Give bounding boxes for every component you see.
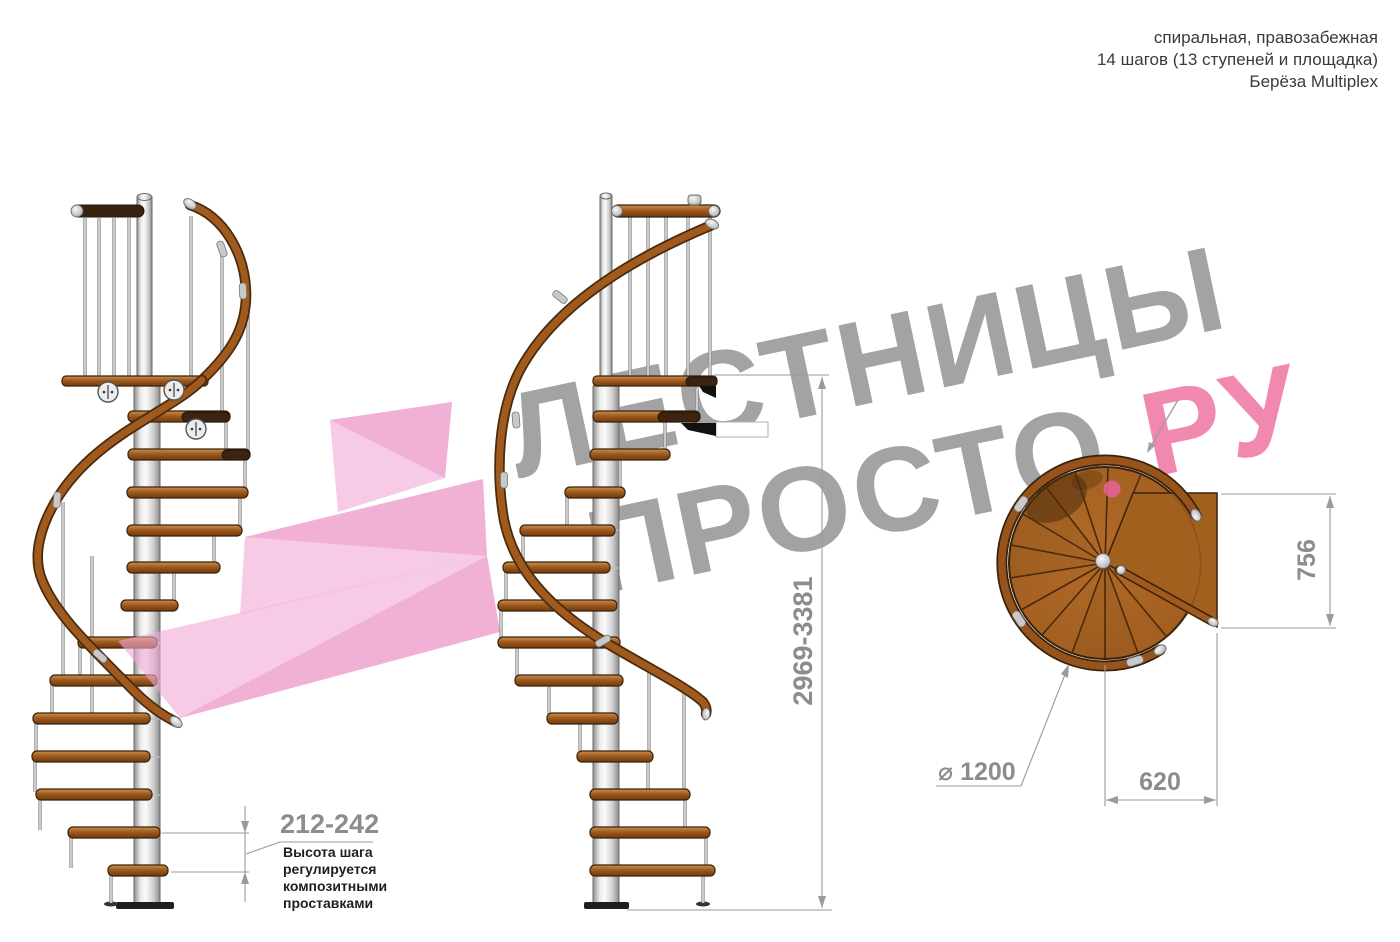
step [36,789,152,800]
handrail-joint [552,289,569,304]
rail-end-ball [709,206,720,217]
center-pole-upper [600,196,612,386]
step [121,600,178,611]
center-pole-top [1096,554,1111,569]
step [33,713,150,724]
note-line2: регулируется [283,861,376,877]
step [108,865,168,876]
handrail-joint [239,283,247,299]
rail-post-ball [1117,566,1126,575]
handrail [190,205,246,379]
step [127,562,220,573]
pole-top-cap [600,193,612,199]
title-steps: 14 шагов (13 ступеней и площадка) [1097,50,1378,69]
handrail-joint [216,240,228,257]
watermark-dot [1104,481,1121,498]
step [127,487,248,498]
landing-depth-label: 756 [1293,539,1321,581]
rail-end-ball [612,206,623,217]
handrail-joint [53,492,61,509]
note-line1: Высота шага [283,844,373,860]
note-line3: композитными [283,878,387,894]
rail-knob [688,195,701,205]
center-pole-upper [137,197,152,386]
step [577,751,653,762]
handrail-outline [190,205,246,379]
step [68,827,160,838]
title-block: спиральная, правозабежная 14 шагов (13 с… [1097,28,1379,91]
note-line4: проставками [283,895,373,911]
diameter-value: 1200 [960,758,1016,786]
landing-platform [62,376,208,386]
dimension-landing-depth: 756 [1221,494,1336,628]
step-dark-end [658,412,700,422]
dimension-diameter: ⌀1200 [936,664,1069,786]
handrail-joint [512,412,520,429]
step [127,525,242,536]
base-flange [584,902,629,909]
step [520,525,615,536]
pole-top-cap [137,194,152,201]
top-guard-rail [612,205,720,217]
step [565,487,625,498]
step [50,675,157,686]
connector-disc [186,419,206,439]
step-height-label: 212-242 [280,809,379,839]
connector-disc [98,382,118,402]
drawing-canvas: ЛЕСТНИЦЫ ПРОСТО.РУ [0,0,1400,942]
step-dark-end [686,377,717,386]
step [590,827,710,838]
step-dark-end [182,412,230,422]
step [590,865,715,876]
dimension-landing-width: 620 [1105,633,1217,806]
landing-width-label: 620 [1139,768,1181,796]
wall-mount-plate [716,422,768,437]
step-dark-end [222,450,250,460]
step [32,751,150,762]
handrail-joint [501,472,508,488]
total-height-label: 2969-3381 [788,576,818,705]
technical-drawing-page: ЛЕСТНИЦЫ ПРОСТО.РУ [0,0,1400,942]
step [590,789,690,800]
step [590,449,670,460]
connector-disc [164,380,184,400]
diameter-symbol: ⌀ [938,757,953,786]
step [515,675,623,686]
step-height-note: Высота шага регулируется композитными пр… [283,844,387,911]
title-material: Берёза Multiplex [1249,72,1378,91]
step [547,713,618,724]
title-type: спиральная, правозабежная [1154,28,1378,47]
rail-end-ball [71,205,83,217]
diameter-label: ⌀1200 [938,757,1016,786]
base-flange [116,902,174,909]
staircase-side-view-1 [32,194,250,910]
